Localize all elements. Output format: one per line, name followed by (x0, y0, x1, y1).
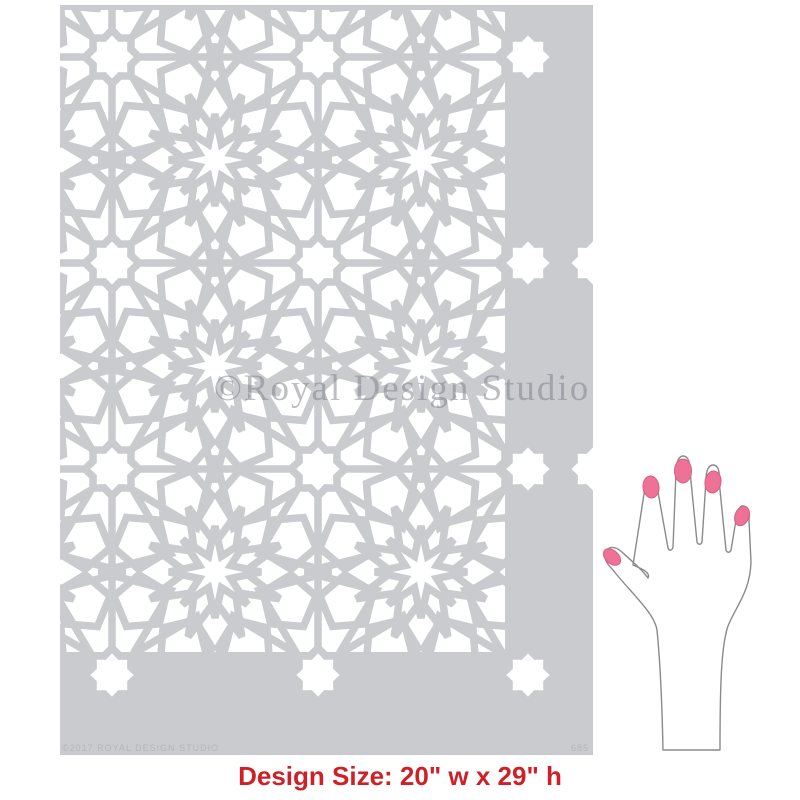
design-size-value: 20" w x 29" h (400, 761, 562, 791)
product-image: ©Royal Design Studio ©2017 ROYAL DESIGN … (0, 0, 800, 800)
stencil-pattern-field (60, 10, 505, 652)
copyright-text: ©2017 ROYAL DESIGN STUDIO (62, 743, 219, 753)
product-code-text: 685 (571, 743, 589, 753)
watermark-text: ©Royal Design Studio (214, 368, 590, 409)
design-size-label: Design Size: (238, 761, 393, 791)
stencil-scene: ©Royal Design Studio ©2017 ROYAL DESIGN … (0, 0, 800, 800)
design-size-caption: Design Size: 20" w x 29" h (0, 761, 800, 792)
caption-space (393, 761, 400, 791)
hand-outline (605, 456, 751, 750)
hand-illustration (600, 456, 752, 750)
